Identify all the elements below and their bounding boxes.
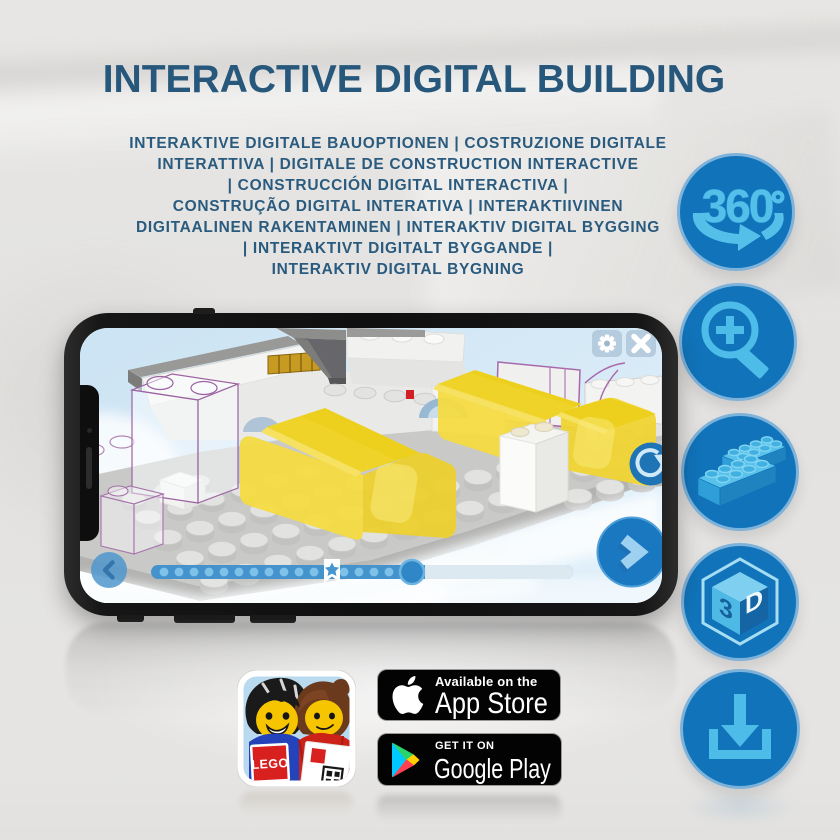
svg-text:360: 360 [702,180,773,232]
svg-text:LEGO: LEGO [251,756,289,772]
